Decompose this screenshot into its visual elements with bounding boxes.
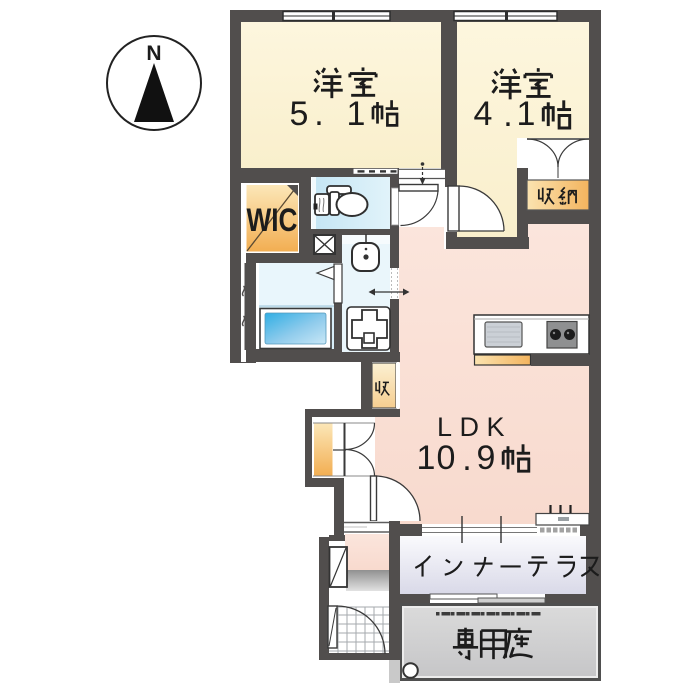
svg-text:1: 1	[417, 439, 436, 477]
svg-text:9: 9	[477, 439, 496, 477]
svg-text:4: 4	[474, 95, 493, 133]
svg-text:.: .	[503, 96, 512, 134]
svg-text:1: 1	[517, 95, 536, 133]
svg-text:0: 0	[437, 439, 456, 477]
svg-text:LDK: LDK	[437, 412, 512, 442]
svg-text:N: N	[146, 42, 161, 65]
svg-text:5: 5	[290, 95, 309, 133]
svg-text:.: .	[462, 440, 471, 478]
svg-text:1: 1	[347, 95, 366, 133]
svg-text:WIC: WIC	[247, 204, 298, 239]
svg-text:.: .	[314, 95, 323, 133]
